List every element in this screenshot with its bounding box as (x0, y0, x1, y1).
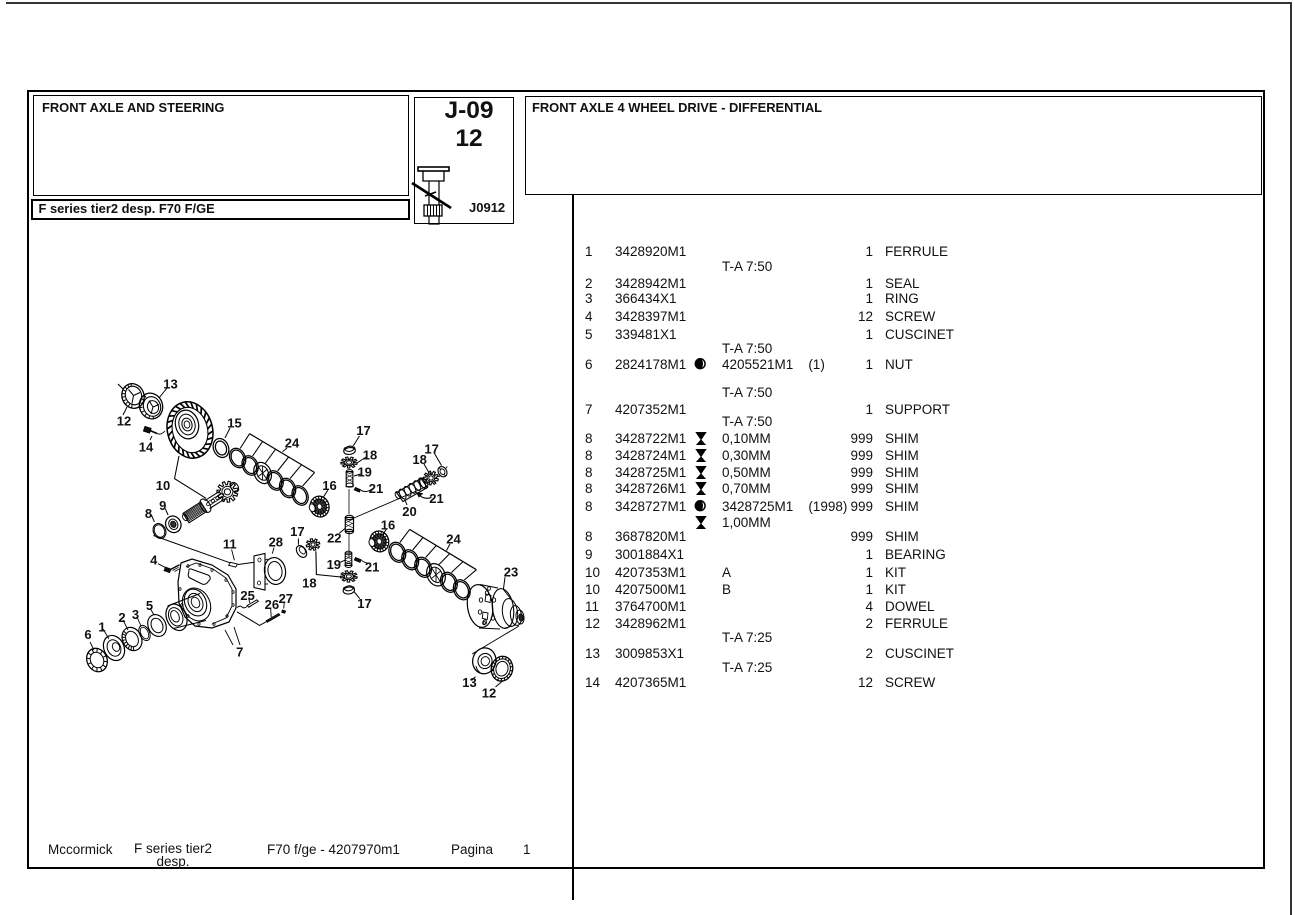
svg-text:21: 21 (429, 491, 443, 506)
svg-text:8: 8 (145, 506, 152, 521)
svg-text:20: 20 (402, 504, 416, 519)
svg-text:18: 18 (302, 575, 316, 590)
svg-text:17: 17 (356, 423, 370, 438)
svg-text:12: 12 (117, 413, 131, 428)
svg-text:1: 1 (98, 620, 105, 635)
svg-text:15: 15 (227, 415, 241, 430)
svg-text:7: 7 (236, 644, 243, 659)
svg-text:2: 2 (118, 610, 125, 625)
svg-text:5: 5 (146, 598, 153, 613)
svg-text:11: 11 (223, 537, 237, 552)
svg-text:16: 16 (322, 478, 336, 493)
svg-text:18: 18 (363, 447, 377, 462)
svg-text:13: 13 (462, 675, 476, 690)
svg-text:14: 14 (139, 439, 154, 454)
svg-text:12: 12 (482, 685, 496, 700)
svg-text:17: 17 (424, 442, 438, 457)
svg-text:25: 25 (240, 588, 254, 603)
svg-text:19: 19 (357, 465, 371, 480)
svg-text:21: 21 (369, 481, 383, 496)
svg-text:9: 9 (159, 498, 166, 513)
svg-text:28: 28 (269, 535, 283, 550)
svg-text:26: 26 (265, 597, 279, 612)
svg-text:17: 17 (357, 596, 371, 611)
svg-text:3: 3 (132, 607, 139, 622)
svg-text:23: 23 (504, 564, 518, 579)
svg-text:16: 16 (381, 518, 395, 533)
svg-text:22: 22 (327, 530, 341, 545)
svg-text:21: 21 (365, 559, 379, 574)
svg-text:10: 10 (156, 478, 170, 493)
svg-text:27: 27 (279, 591, 293, 606)
svg-text:4: 4 (150, 552, 158, 567)
svg-text:19: 19 (327, 557, 341, 572)
svg-text:17: 17 (290, 524, 304, 539)
svg-text:24: 24 (285, 436, 300, 451)
svg-text:24: 24 (446, 532, 461, 547)
svg-text:6: 6 (84, 627, 91, 642)
svg-text:13: 13 (163, 376, 177, 391)
